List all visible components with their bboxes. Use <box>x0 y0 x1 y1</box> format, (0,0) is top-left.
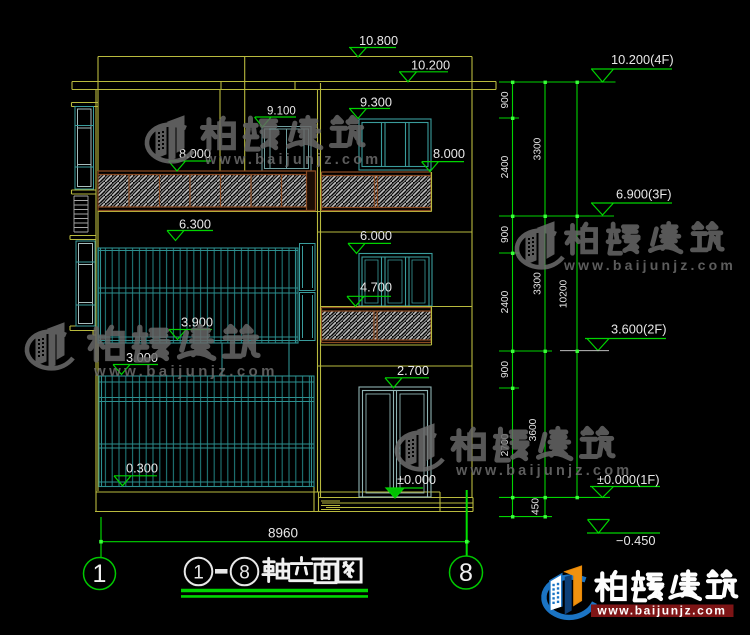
svg-text:www.baijunjz.com: www.baijunjz.com <box>455 463 632 479</box>
svg-text:10.200: 10.200 <box>411 58 450 73</box>
svg-text:10200: 10200 <box>559 280 570 309</box>
svg-text:www.baijunjz.com: www.baijunjz.com <box>93 363 278 380</box>
svg-text:3.600(2F): 3.600(2F) <box>611 322 666 337</box>
svg-text:−0.450: −0.450 <box>616 533 656 548</box>
svg-text:900: 900 <box>500 91 511 108</box>
svg-text:900: 900 <box>500 226 511 243</box>
svg-text:3300: 3300 <box>533 272 544 295</box>
svg-text:4.700: 4.700 <box>360 280 392 295</box>
svg-text:6.300: 6.300 <box>179 217 211 232</box>
svg-text:8: 8 <box>459 559 473 587</box>
svg-text:±0.000: ±0.000 <box>397 472 436 487</box>
svg-text:8: 8 <box>239 563 250 584</box>
svg-text:www.baijunjz.com: www.baijunjz.com <box>596 604 726 618</box>
svg-text:3300: 3300 <box>533 137 544 160</box>
svg-text:450: 450 <box>531 498 542 515</box>
svg-text:0.300: 0.300 <box>126 461 158 476</box>
svg-text:2400: 2400 <box>500 155 511 178</box>
svg-text:900: 900 <box>500 361 511 378</box>
svg-text:8.000: 8.000 <box>433 146 465 161</box>
svg-text:1: 1 <box>193 563 204 584</box>
svg-text:9.300: 9.300 <box>360 95 392 110</box>
svg-text:8960: 8960 <box>268 526 298 541</box>
svg-text:6.900(3F): 6.900(3F) <box>616 187 671 202</box>
svg-text:www.baijunjz.com: www.baijunjz.com <box>563 257 736 273</box>
svg-text:3.900: 3.900 <box>181 315 213 330</box>
svg-text:10.200(4F): 10.200(4F) <box>611 52 674 67</box>
svg-text:9.100: 9.100 <box>267 106 296 118</box>
svg-text:10.800: 10.800 <box>359 33 398 48</box>
svg-text:1: 1 <box>93 560 107 588</box>
svg-text:2.700: 2.700 <box>397 363 429 378</box>
svg-text:www.baijunjz.com: www.baijunjz.com <box>204 152 381 168</box>
svg-text:2400: 2400 <box>500 290 511 313</box>
svg-text:6.000: 6.000 <box>360 228 392 243</box>
svg-text:3600: 3600 <box>528 418 539 441</box>
